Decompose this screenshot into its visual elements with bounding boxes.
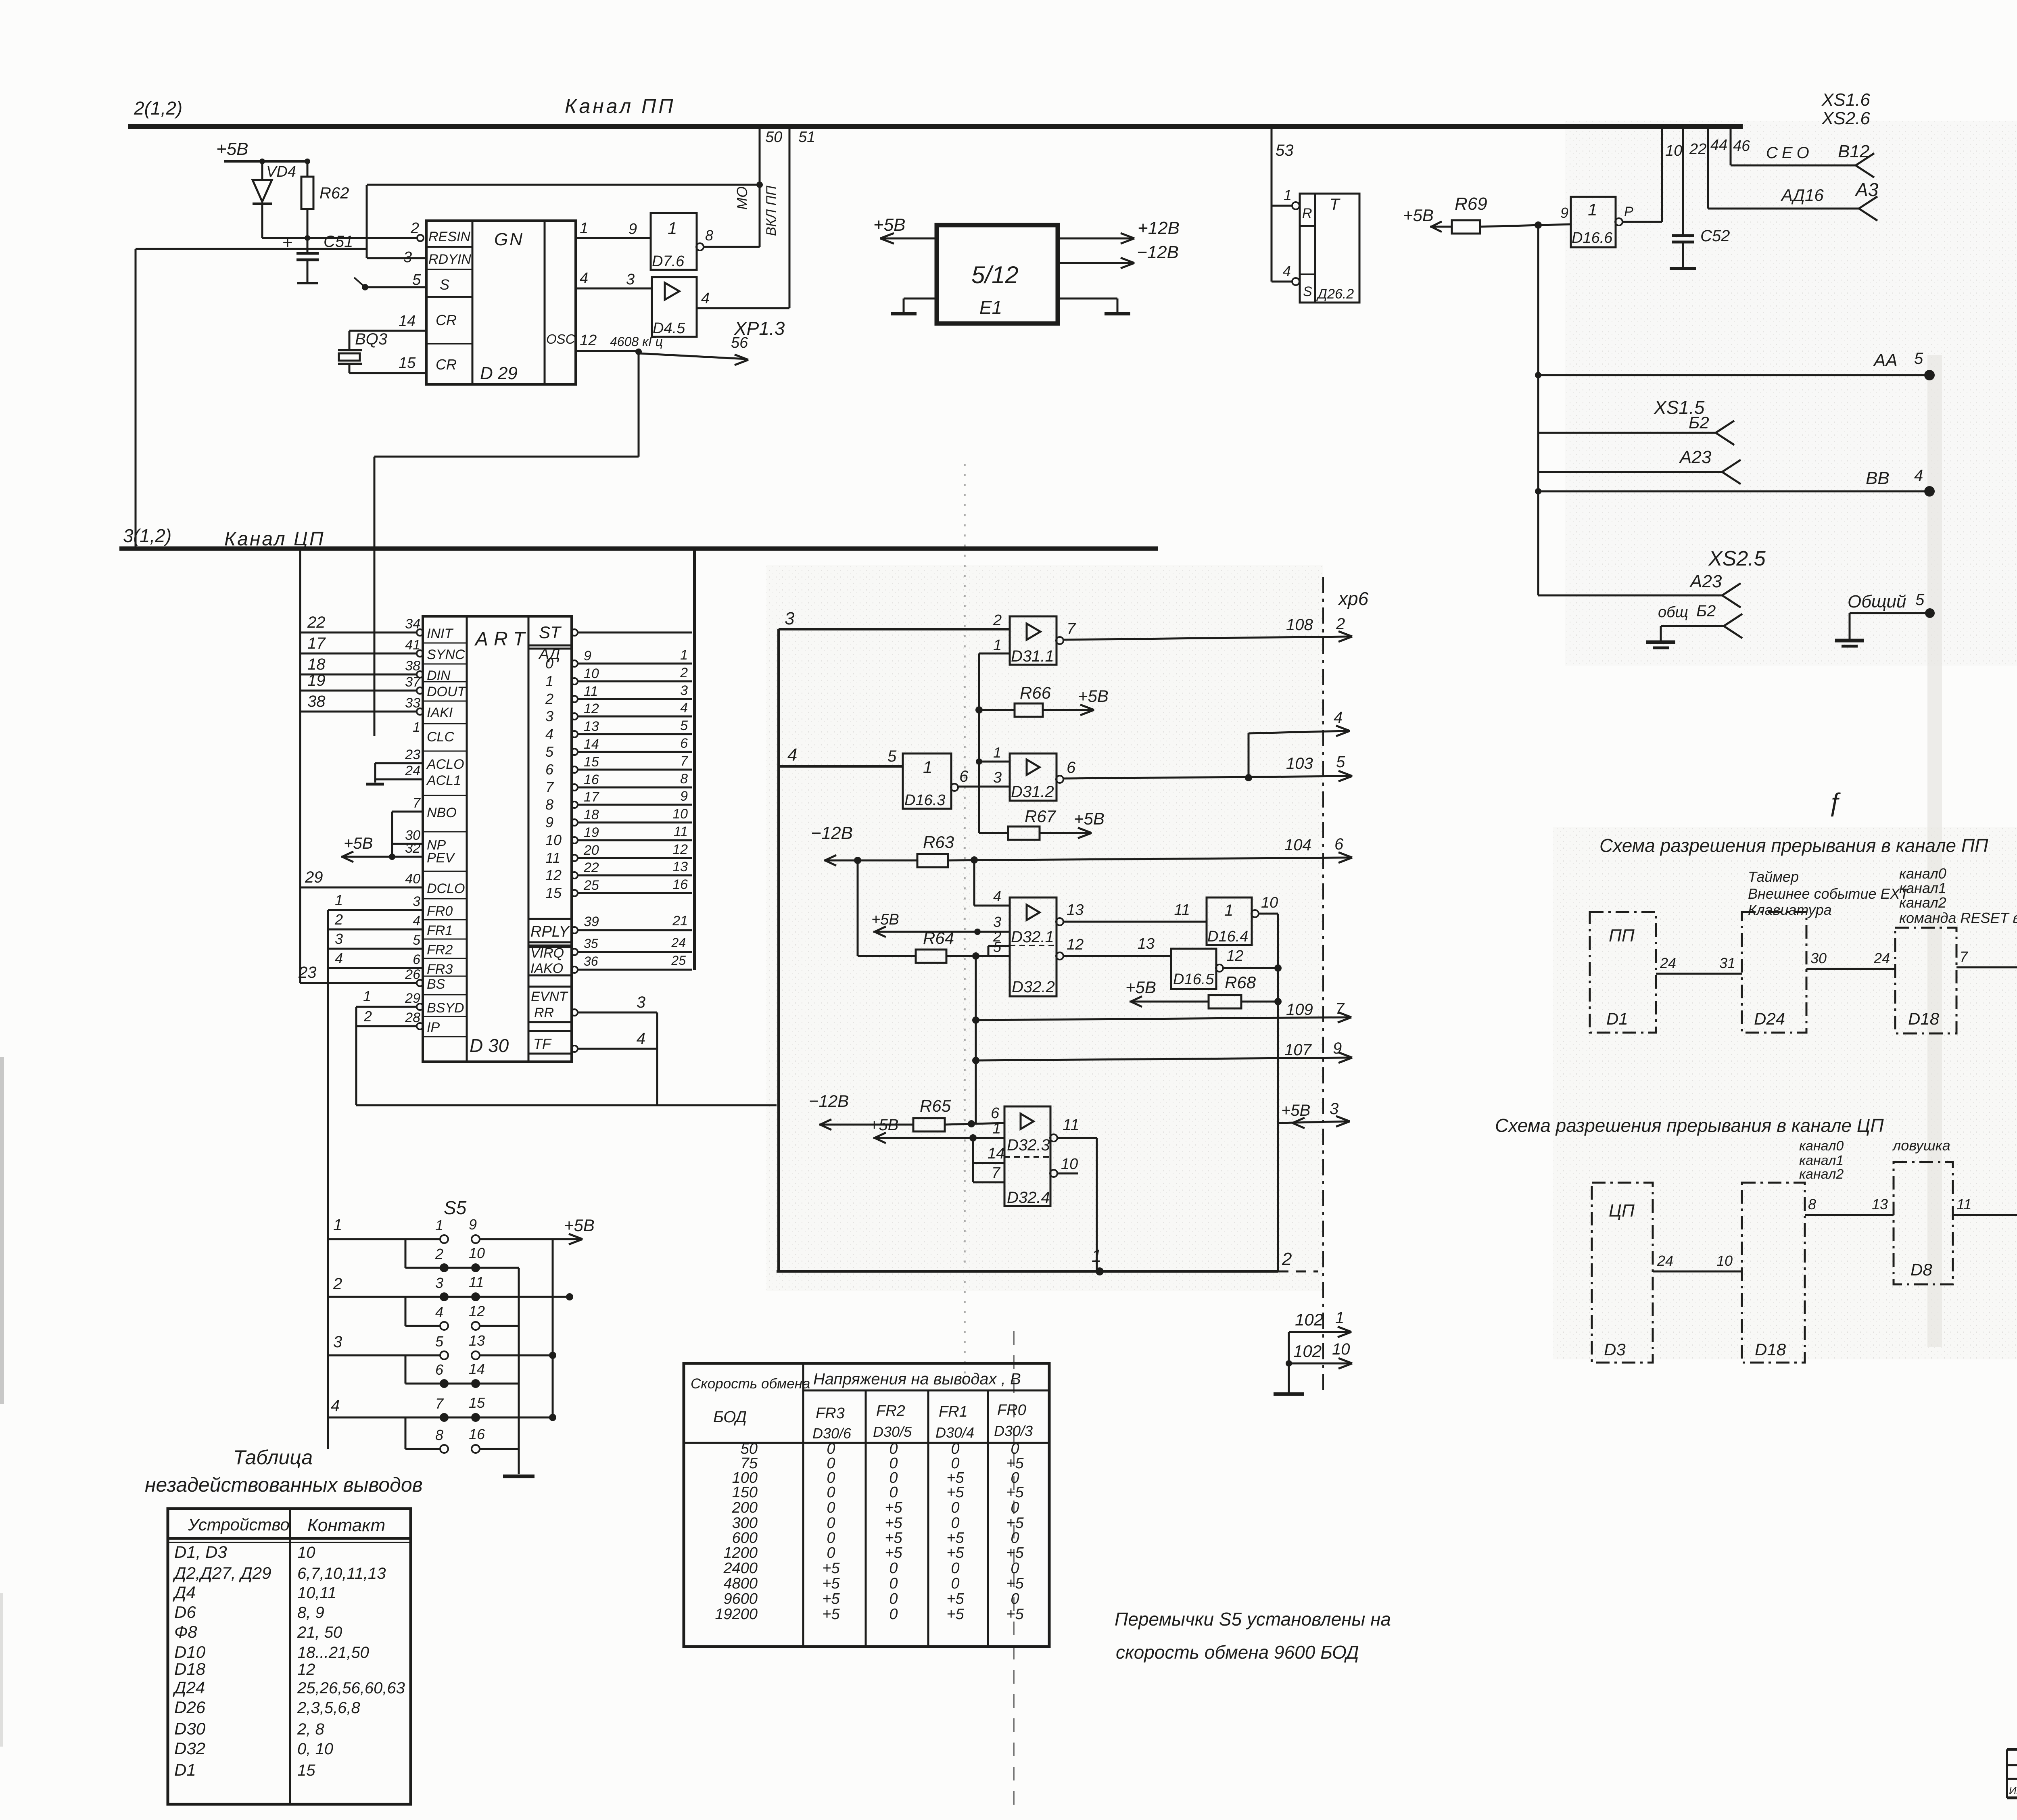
svg-text:D32.3: D32.3 bbox=[1007, 1136, 1050, 1154]
svg-text:50: 50 bbox=[765, 129, 782, 146]
svg-text:0, 10: 0, 10 bbox=[297, 1740, 333, 1758]
svg-text:10,11: 10,11 bbox=[297, 1584, 336, 1602]
svg-text:3: 3 bbox=[785, 609, 795, 628]
svg-text:0: 0 bbox=[951, 1560, 959, 1577]
svg-text:8: 8 bbox=[545, 796, 553, 813]
svg-text:Внешнее событие EXT: Внешнее событие EXT bbox=[1748, 885, 1910, 902]
svg-text:+5В: +5В bbox=[871, 911, 899, 928]
svg-text:1: 1 bbox=[1588, 200, 1597, 219]
svg-text:0: 0 bbox=[827, 1544, 835, 1561]
svg-text:8: 8 bbox=[1808, 1196, 1816, 1213]
svg-text:1: 1 bbox=[435, 1217, 443, 1234]
svg-text:5: 5 bbox=[413, 933, 420, 948]
svg-text:скорость обмена 9600 БОД: скорость обмена 9600 БОД bbox=[1116, 1642, 1359, 1663]
svg-text:20: 20 bbox=[583, 843, 599, 858]
svg-text:10: 10 bbox=[1332, 1340, 1350, 1358]
svg-text:D18: D18 bbox=[174, 1659, 206, 1678]
svg-text:5/12: 5/12 bbox=[971, 261, 1019, 288]
svg-text:NBO: NBO bbox=[427, 805, 457, 820]
svg-text:BSYD: BSYD bbox=[427, 1000, 464, 1016]
svg-text:23: 23 bbox=[405, 747, 420, 762]
svg-text:E1: E1 bbox=[979, 297, 1002, 318]
svg-text:0: 0 bbox=[889, 1560, 898, 1577]
svg-text:D1, D3: D1, D3 bbox=[174, 1542, 227, 1561]
svg-text:ƒ: ƒ bbox=[1827, 787, 1842, 817]
svg-text:2: 2 bbox=[410, 220, 419, 237]
svg-text:+5В: +5В bbox=[873, 215, 906, 235]
svg-text:D32: D32 bbox=[174, 1739, 205, 1758]
svg-text:RDYIN: RDYIN bbox=[428, 252, 471, 267]
svg-text:DCLO: DCLO bbox=[427, 881, 465, 896]
svg-text:А23: А23 bbox=[1679, 447, 1712, 467]
svg-text:0: 0 bbox=[827, 1484, 835, 1501]
svg-text:D1: D1 bbox=[1606, 1009, 1628, 1028]
svg-text:Б2: Б2 bbox=[1689, 413, 1709, 432]
svg-text:D30/3: D30/3 bbox=[994, 1423, 1033, 1439]
svg-text:канал1: канал1 bbox=[1799, 1153, 1844, 1168]
svg-text:4: 4 bbox=[435, 1304, 443, 1320]
svg-text:16: 16 bbox=[469, 1426, 485, 1442]
svg-text:ST: ST bbox=[539, 623, 562, 642]
svg-text:7: 7 bbox=[992, 1165, 1001, 1181]
svg-text:0: 0 bbox=[889, 1575, 898, 1592]
svg-text:D 30: D 30 bbox=[470, 1035, 509, 1056]
svg-text:10: 10 bbox=[469, 1245, 485, 1261]
svg-text:9: 9 bbox=[1333, 1039, 1342, 1057]
svg-text:D16.3: D16.3 bbox=[904, 792, 945, 809]
svg-text:+5: +5 bbox=[822, 1560, 840, 1577]
svg-text:D3: D3 bbox=[1604, 1340, 1626, 1359]
svg-text:0: 0 bbox=[1011, 1560, 1019, 1577]
svg-text:6: 6 bbox=[545, 761, 554, 778]
svg-text:10: 10 bbox=[297, 1544, 315, 1561]
svg-text:S5: S5 bbox=[444, 1197, 467, 1218]
svg-text:D18: D18 bbox=[1908, 1009, 1940, 1028]
svg-text:D18: D18 bbox=[1755, 1340, 1786, 1359]
svg-text:Скорость обмена: Скорость обмена bbox=[691, 1376, 810, 1392]
svg-text:канал2: канал2 bbox=[1799, 1167, 1844, 1182]
svg-text:12: 12 bbox=[469, 1303, 485, 1319]
svg-text:ЦП: ЦП bbox=[1609, 1201, 1635, 1221]
svg-text:4: 4 bbox=[331, 1397, 340, 1415]
svg-text:канал0: канал0 bbox=[1799, 1138, 1844, 1154]
svg-text:FR0: FR0 bbox=[997, 1402, 1026, 1419]
svg-text:+5: +5 bbox=[946, 1544, 964, 1561]
svg-text:102: 102 bbox=[1295, 1310, 1323, 1329]
svg-text:R69: R69 bbox=[1455, 194, 1487, 214]
svg-text:2: 2 bbox=[993, 612, 1002, 629]
svg-text:11: 11 bbox=[674, 824, 688, 839]
svg-text:Таблица: Таблица bbox=[233, 1446, 313, 1469]
svg-text:8: 8 bbox=[705, 227, 713, 244]
svg-text:1: 1 bbox=[993, 744, 1001, 761]
svg-text:10: 10 bbox=[1716, 1252, 1733, 1269]
svg-text:D30/5: D30/5 bbox=[873, 1423, 912, 1440]
svg-text:+5В: +5В bbox=[869, 1116, 898, 1134]
svg-text:15: 15 bbox=[545, 885, 562, 901]
svg-text:12: 12 bbox=[580, 332, 597, 349]
svg-text:В12: В12 bbox=[1838, 142, 1869, 161]
svg-text:12: 12 bbox=[1226, 948, 1243, 964]
svg-text:4: 4 bbox=[680, 700, 688, 716]
svg-text:3: 3 bbox=[333, 1333, 342, 1351]
svg-text:FR2: FR2 bbox=[427, 942, 453, 958]
svg-text:IAKO: IAKO bbox=[530, 961, 563, 976]
svg-text:3: 3 bbox=[626, 271, 635, 288]
svg-text:2: 2 bbox=[435, 1246, 443, 1262]
svg-text:7: 7 bbox=[1335, 1000, 1345, 1018]
svg-text:19: 19 bbox=[584, 825, 599, 840]
svg-text:D6: D6 bbox=[174, 1603, 196, 1622]
svg-text:9: 9 bbox=[545, 814, 553, 831]
svg-text:Напряжения на выводах , В: Напряжения на выводах , В bbox=[813, 1370, 1021, 1388]
svg-text:D30: D30 bbox=[174, 1719, 206, 1738]
svg-text:SYNC: SYNC bbox=[427, 647, 465, 662]
svg-text:23: 23 bbox=[298, 964, 317, 981]
svg-text:6: 6 bbox=[991, 1105, 1000, 1122]
svg-text:Канал ПП: Канал ПП bbox=[565, 95, 676, 117]
svg-text:25,26,56,60,63: 25,26,56,60,63 bbox=[297, 1679, 405, 1697]
svg-text:38: 38 bbox=[307, 693, 326, 710]
svg-text:+5: +5 bbox=[885, 1530, 902, 1547]
svg-text:56: 56 bbox=[731, 334, 748, 351]
svg-text:0: 0 bbox=[1011, 1590, 1019, 1607]
svg-text:DIN: DIN bbox=[427, 668, 451, 683]
svg-text:11: 11 bbox=[469, 1274, 484, 1290]
svg-text:D7.6: D7.6 bbox=[652, 253, 685, 270]
svg-text:R63: R63 bbox=[923, 833, 954, 852]
svg-text:+5В: +5В bbox=[564, 1216, 595, 1235]
svg-text:2400: 2400 bbox=[723, 1560, 758, 1577]
svg-text:Ф8: Ф8 bbox=[174, 1622, 197, 1641]
svg-text:3: 3 bbox=[637, 993, 645, 1011]
svg-text:Общий: Общий bbox=[1848, 592, 1906, 612]
svg-text:0: 0 bbox=[1011, 1499, 1019, 1516]
svg-text:IP: IP bbox=[427, 1020, 440, 1035]
svg-text:15: 15 bbox=[584, 754, 599, 770]
svg-text:0: 0 bbox=[827, 1530, 835, 1547]
svg-text:13: 13 bbox=[1872, 1196, 1888, 1213]
svg-text:XS2.5: XS2.5 bbox=[1708, 547, 1766, 570]
svg-text:24: 24 bbox=[1873, 950, 1890, 966]
svg-text:1: 1 bbox=[680, 647, 688, 663]
svg-text:7: 7 bbox=[413, 795, 421, 811]
svg-text:ловушка: ловушка bbox=[1892, 1137, 1950, 1154]
svg-text:4: 4 bbox=[545, 726, 553, 742]
svg-text:102: 102 bbox=[1293, 1342, 1322, 1361]
svg-text:10: 10 bbox=[1061, 1156, 1078, 1173]
svg-text:3: 3 bbox=[335, 931, 343, 947]
svg-text:D 29: D 29 bbox=[480, 363, 518, 383]
svg-text:0: 0 bbox=[951, 1515, 959, 1532]
svg-text:1: 1 bbox=[545, 673, 553, 689]
svg-text:8: 8 bbox=[680, 771, 688, 787]
svg-text:6: 6 bbox=[1067, 759, 1076, 776]
svg-text:2: 2 bbox=[1282, 1249, 1292, 1269]
svg-text:−12В: −12В bbox=[811, 823, 853, 843]
svg-text:D1: D1 bbox=[174, 1760, 196, 1779]
svg-text:1: 1 bbox=[580, 220, 588, 237]
svg-text:13: 13 bbox=[1067, 902, 1084, 918]
svg-text:5: 5 bbox=[1336, 753, 1345, 771]
svg-text:13: 13 bbox=[469, 1332, 485, 1349]
svg-text:3: 3 bbox=[413, 894, 420, 909]
svg-text:+5: +5 bbox=[822, 1590, 840, 1607]
svg-text:D16.4: D16.4 bbox=[1207, 928, 1248, 945]
svg-text:104: 104 bbox=[1284, 836, 1311, 854]
svg-text:+5В: +5В bbox=[216, 139, 248, 159]
svg-text:+5: +5 bbox=[1006, 1484, 1024, 1501]
svg-text:ПП: ПП bbox=[1609, 926, 1635, 945]
svg-text:команда RESET в канале ЦП: команда RESET в канале ЦП bbox=[1899, 910, 2017, 926]
svg-text:53: 53 bbox=[1276, 142, 1294, 159]
svg-text:Б2: Б2 bbox=[1696, 602, 1716, 620]
svg-text:OSC: OSC bbox=[546, 332, 576, 346]
svg-text:51: 51 bbox=[798, 129, 815, 146]
svg-text:8: 8 bbox=[435, 1427, 443, 1443]
svg-text:4608 кГц: 4608 кГц bbox=[610, 334, 663, 349]
svg-text:22: 22 bbox=[307, 614, 326, 631]
svg-text:200: 200 bbox=[732, 1499, 758, 1516]
svg-text:600: 600 bbox=[732, 1530, 758, 1547]
svg-text:18...21,50: 18...21,50 bbox=[297, 1644, 369, 1661]
svg-text:15: 15 bbox=[469, 1394, 485, 1411]
svg-text:12: 12 bbox=[672, 842, 688, 857]
svg-text:13: 13 bbox=[672, 859, 688, 875]
svg-text:2: 2 bbox=[333, 1275, 342, 1293]
svg-text:R68: R68 bbox=[1225, 973, 1256, 992]
svg-text:9: 9 bbox=[469, 1216, 477, 1233]
svg-text:4: 4 bbox=[993, 888, 1001, 904]
svg-text:2: 2 bbox=[1336, 615, 1345, 633]
svg-text:S: S bbox=[1303, 284, 1312, 299]
svg-text:А3: А3 bbox=[1854, 179, 1879, 200]
svg-text:CLC: CLC bbox=[427, 729, 454, 745]
svg-text:46: 46 bbox=[1733, 138, 1750, 154]
svg-text:2: 2 bbox=[363, 1008, 372, 1025]
svg-text:25: 25 bbox=[671, 953, 686, 968]
svg-text:6: 6 bbox=[435, 1361, 444, 1378]
svg-text:D16.5: D16.5 bbox=[1173, 971, 1214, 988]
svg-text:Д26.2: Д26.2 bbox=[1316, 286, 1354, 302]
svg-text:7: 7 bbox=[1067, 620, 1076, 638]
svg-text:Контакт: Контакт bbox=[307, 1515, 385, 1535]
svg-text:VD4: VD4 bbox=[266, 163, 296, 180]
svg-text:13: 13 bbox=[584, 719, 599, 734]
svg-text:−12В: −12В bbox=[1137, 242, 1179, 262]
svg-text:12: 12 bbox=[297, 1661, 315, 1678]
svg-text:ВКЛ ПП: ВКЛ ПП bbox=[764, 186, 779, 236]
svg-text:11: 11 bbox=[1174, 902, 1190, 918]
svg-text:DOUT: DOUT bbox=[427, 684, 467, 699]
svg-text:11: 11 bbox=[545, 849, 560, 866]
svg-text:D31.1: D31.1 bbox=[1011, 647, 1054, 665]
svg-text:9: 9 bbox=[680, 789, 688, 804]
svg-text:+5: +5 bbox=[885, 1544, 902, 1561]
svg-text:7: 7 bbox=[545, 779, 554, 795]
svg-text:RR: RR bbox=[534, 1005, 554, 1021]
svg-text:4: 4 bbox=[787, 745, 797, 765]
svg-text:15: 15 bbox=[297, 1762, 315, 1779]
svg-text:4: 4 bbox=[1334, 709, 1343, 726]
svg-text:+5В: +5В bbox=[344, 835, 373, 852]
svg-text:GN: GN bbox=[494, 230, 524, 249]
svg-text:300: 300 bbox=[732, 1515, 758, 1532]
svg-text:CR: CR bbox=[436, 356, 457, 373]
svg-text:5: 5 bbox=[1914, 350, 1923, 367]
svg-text:R: R bbox=[1302, 206, 1312, 221]
svg-text:БОД: БОД bbox=[713, 1408, 747, 1426]
svg-text:Устройство: Устройство bbox=[188, 1515, 290, 1534]
svg-text:CEO: CEO bbox=[1766, 144, 1813, 162]
svg-text:5: 5 bbox=[887, 747, 897, 765]
svg-text:22: 22 bbox=[1689, 141, 1706, 158]
svg-text:29: 29 bbox=[305, 868, 323, 886]
svg-text:Схема разрешения прерывания: Схема разрешения прерывания в канале ЦП bbox=[1495, 1115, 1884, 1136]
svg-text:0: 0 bbox=[951, 1575, 959, 1592]
svg-text:Р: Р bbox=[1624, 204, 1633, 219]
svg-text:МО: МО bbox=[734, 186, 750, 210]
svg-text:7: 7 bbox=[1960, 948, 1969, 965]
svg-text:1: 1 bbox=[413, 720, 420, 735]
svg-text:+5: +5 bbox=[1006, 1515, 1024, 1532]
svg-text:XS1.6: XS1.6 bbox=[1821, 90, 1870, 110]
svg-text:VIRQ: VIRQ bbox=[530, 945, 564, 961]
svg-text:3: 3 bbox=[545, 708, 553, 724]
svg-text:R62: R62 bbox=[319, 184, 349, 202]
svg-text:13: 13 bbox=[1138, 935, 1155, 952]
svg-text:0: 0 bbox=[889, 1606, 898, 1623]
svg-text:незадействованных выводов: незадействованных выводов bbox=[145, 1474, 423, 1496]
svg-text:0: 0 bbox=[827, 1499, 835, 1516]
svg-text:D10: D10 bbox=[174, 1643, 206, 1661]
svg-text:3: 3 bbox=[435, 1275, 443, 1291]
svg-text:2: 2 bbox=[334, 911, 343, 928]
svg-text:24: 24 bbox=[405, 763, 420, 779]
svg-text:+5: +5 bbox=[946, 1484, 964, 1501]
svg-text:Изм: Изм bbox=[2009, 1785, 2017, 1797]
svg-text:10: 10 bbox=[584, 666, 599, 681]
svg-text:PEV: PEV bbox=[427, 850, 455, 866]
svg-text:40: 40 bbox=[405, 871, 420, 887]
svg-text:1: 1 bbox=[668, 219, 677, 238]
svg-text:14: 14 bbox=[399, 313, 416, 330]
svg-text:6: 6 bbox=[959, 768, 969, 785]
svg-text:150: 150 bbox=[732, 1484, 758, 1501]
svg-text:0: 0 bbox=[889, 1484, 898, 1501]
svg-text:Таймер: Таймер bbox=[1748, 868, 1799, 885]
svg-text:А23: А23 bbox=[1689, 572, 1722, 591]
svg-text:T: T bbox=[1330, 196, 1340, 213]
svg-text:30: 30 bbox=[1810, 950, 1827, 966]
svg-text:BS: BS bbox=[427, 977, 445, 992]
svg-text:D32.4: D32.4 bbox=[1007, 1189, 1050, 1206]
svg-text:19: 19 bbox=[307, 672, 326, 689]
svg-text:D32.1: D32.1 bbox=[1011, 928, 1054, 946]
svg-text:16: 16 bbox=[672, 877, 688, 892]
svg-text:D16.6: D16.6 bbox=[1572, 230, 1613, 246]
svg-text:0: 0 bbox=[889, 1590, 898, 1607]
svg-text:+5В: +5В bbox=[1078, 687, 1109, 705]
svg-text:107: 107 bbox=[1284, 1041, 1312, 1059]
svg-text:ВВ: ВВ bbox=[1866, 468, 1890, 488]
svg-text:12: 12 bbox=[584, 701, 599, 716]
svg-text:C51: C51 bbox=[324, 233, 353, 250]
svg-text:44: 44 bbox=[1710, 137, 1727, 154]
svg-text:103: 103 bbox=[1286, 755, 1313, 772]
svg-text:7: 7 bbox=[680, 753, 688, 769]
svg-text:6: 6 bbox=[680, 736, 688, 751]
svg-text:1: 1 bbox=[335, 892, 343, 908]
svg-text:+5: +5 bbox=[946, 1606, 964, 1623]
svg-text:2: 2 bbox=[545, 691, 553, 707]
svg-text:+5В: +5В bbox=[1074, 809, 1105, 828]
svg-text:1: 1 bbox=[923, 758, 932, 776]
svg-text:3: 3 bbox=[993, 914, 1001, 930]
svg-text:21, 50: 21, 50 bbox=[297, 1624, 342, 1641]
svg-text:24: 24 bbox=[671, 935, 686, 950]
svg-text:9: 9 bbox=[584, 648, 591, 664]
svg-text:Перемычки S5 установлены на: Перемычки S5 установлены на bbox=[1115, 1609, 1391, 1630]
svg-text:12: 12 bbox=[545, 867, 562, 883]
svg-text:1: 1 bbox=[363, 988, 371, 1004]
svg-text:FR0: FR0 bbox=[427, 904, 453, 919]
svg-text:АД16: АД16 bbox=[1780, 186, 1824, 205]
svg-text:3: 3 bbox=[993, 769, 1002, 786]
svg-text:общ: общ bbox=[1658, 604, 1688, 621]
svg-text:ACLO: ACLO bbox=[426, 757, 464, 772]
svg-text:1: 1 bbox=[993, 637, 1002, 654]
svg-text:+5: +5 bbox=[1006, 1544, 1024, 1561]
svg-text:1: 1 bbox=[1335, 1309, 1344, 1327]
svg-text:109: 109 bbox=[1286, 1001, 1313, 1019]
svg-text:6: 6 bbox=[1334, 835, 1344, 853]
svg-text:+5: +5 bbox=[822, 1606, 840, 1623]
svg-text:+5: +5 bbox=[822, 1575, 840, 1592]
svg-text:1: 1 bbox=[1224, 902, 1233, 919]
svg-text:19200: 19200 bbox=[715, 1606, 758, 1623]
svg-text:Клавиатура: Клавиатура bbox=[1748, 902, 1832, 918]
svg-text:4: 4 bbox=[1283, 263, 1291, 279]
svg-text:1200: 1200 bbox=[723, 1544, 758, 1561]
svg-text:1: 1 bbox=[333, 1216, 342, 1234]
svg-text:14: 14 bbox=[469, 1361, 485, 1377]
svg-text:4: 4 bbox=[580, 270, 588, 287]
svg-text:9: 9 bbox=[1560, 205, 1568, 221]
svg-text:XS2.6: XS2.6 bbox=[1821, 109, 1870, 128]
svg-text:S: S bbox=[440, 276, 449, 293]
svg-text:39: 39 bbox=[584, 914, 599, 929]
svg-text:6: 6 bbox=[413, 952, 420, 967]
svg-text:4: 4 bbox=[1914, 467, 1923, 484]
svg-text:8, 9: 8, 9 bbox=[297, 1604, 324, 1622]
svg-text:R65: R65 bbox=[920, 1096, 951, 1115]
svg-text:D24: D24 bbox=[1754, 1009, 1785, 1028]
svg-text:2(1,2): 2(1,2) bbox=[134, 98, 182, 119]
svg-text:D31.2: D31.2 bbox=[1011, 783, 1054, 801]
svg-text:Схема разрешения прерывания: Схема разрешения прерывания в канале ПП bbox=[1599, 835, 1988, 856]
svg-text:11: 11 bbox=[1063, 1116, 1079, 1134]
svg-text:17: 17 bbox=[584, 789, 599, 805]
svg-text:FR1: FR1 bbox=[939, 1403, 968, 1420]
svg-text:18: 18 bbox=[584, 807, 599, 822]
svg-text:6,7,10,11,13: 6,7,10,11,13 bbox=[297, 1565, 386, 1582]
svg-text:R66: R66 bbox=[1020, 683, 1051, 702]
svg-text:0: 0 bbox=[545, 655, 553, 672]
svg-text:+5В: +5В bbox=[1281, 1102, 1310, 1119]
svg-text:ART: ART bbox=[474, 628, 530, 650]
svg-text:D8: D8 bbox=[1911, 1260, 1932, 1279]
